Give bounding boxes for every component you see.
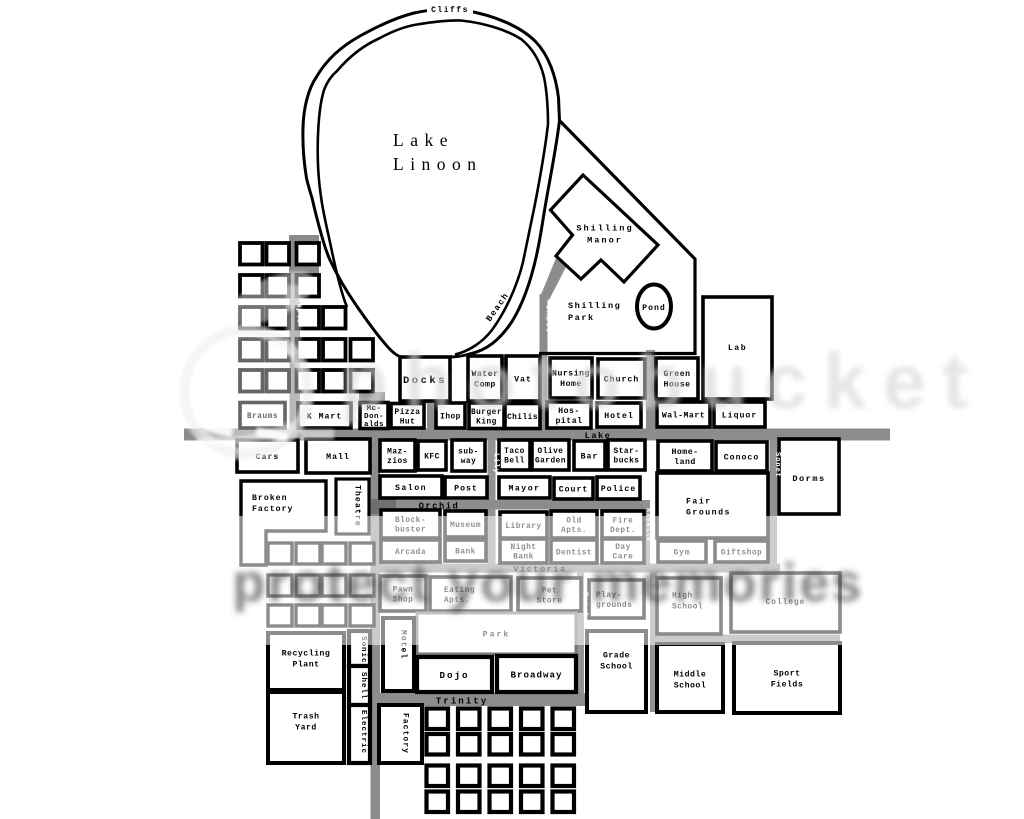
svg-text:Lily: Lily <box>492 453 500 474</box>
svg-text:Trinity: Trinity <box>436 696 489 707</box>
svg-text:Salon: Salon <box>395 483 427 493</box>
svg-text:sub-way: sub-way <box>458 449 479 467</box>
svg-text:Factory: Factory <box>400 713 408 754</box>
svg-text:Maz-zios: Maz-zios <box>387 449 408 467</box>
svg-text:Conoco: Conoco <box>724 454 759 463</box>
svg-text:Dorms: Dorms <box>792 474 825 484</box>
svg-text:Court: Court <box>559 486 589 495</box>
svg-text:K Mart: K Mart <box>307 413 342 422</box>
svg-text:Police: Police <box>601 484 636 494</box>
svg-text:Cliffs: Cliffs <box>431 6 469 15</box>
svg-text:Shill: Shill <box>544 305 552 333</box>
svg-text:Mall: Mall <box>326 452 350 462</box>
svg-text:KFC: KFC <box>424 453 440 461</box>
svg-text:Shell: Shell <box>359 672 367 700</box>
svg-text:Post: Post <box>454 485 478 494</box>
svg-text:Broadway: Broadway <box>510 669 562 680</box>
svg-text:Electric: Electric <box>359 710 367 754</box>
svg-text:OliveGarden: OliveGarden <box>535 448 566 466</box>
svg-text:Sonet: Sonet <box>773 452 781 478</box>
svg-text:Star-bucks: Star-bucks <box>614 448 640 466</box>
svg-text:photobucket: photobucket <box>340 337 984 425</box>
svg-text:Home-land: Home-land <box>671 448 698 467</box>
svg-text:Mayor: Mayor <box>508 485 540 494</box>
svg-text:Bar: Bar <box>581 453 599 462</box>
svg-text:TacoBell: TacoBell <box>504 448 525 466</box>
svg-text:protect your memories: protect your memories <box>232 553 863 613</box>
svg-text:Pond: Pond <box>642 303 666 313</box>
svg-text:Dojo: Dojo <box>439 670 469 681</box>
